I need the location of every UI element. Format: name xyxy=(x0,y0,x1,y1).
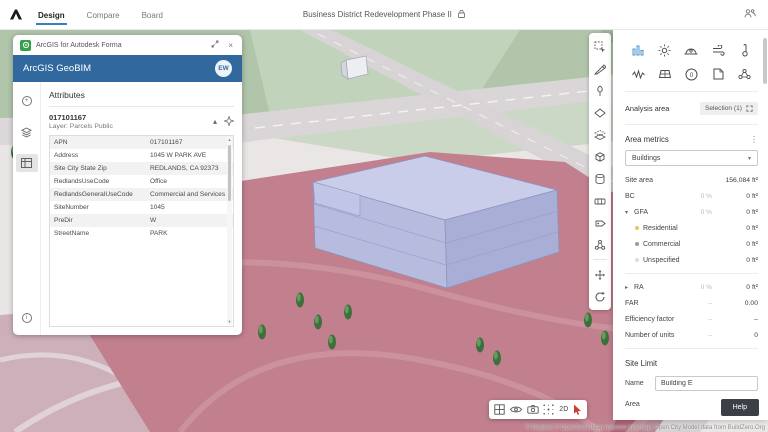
building-tool-icon[interactable] xyxy=(592,149,608,164)
chevron-down-icon: ▾ xyxy=(748,155,751,162)
attribute-table: APN017101167 Address1045 W PARK AVE Site… xyxy=(49,135,234,327)
site-limit-title: Site Limit xyxy=(625,354,758,372)
selection-button[interactable]: Selection (1) xyxy=(700,102,758,115)
embodied-carbon-icon[interactable]: 0 xyxy=(678,62,705,86)
metric-row-ra: ▸RA 0 % 0 ft² xyxy=(625,279,758,295)
focus-selection-icon xyxy=(746,105,753,112)
table-row[interactable]: StreetNamePARK xyxy=(50,227,233,240)
gfa-collapse-chevron[interactable]: ▾ xyxy=(625,209,634,216)
arcgis-logo-icon xyxy=(20,40,31,51)
export-icon[interactable] xyxy=(705,62,732,86)
select-tool-icon[interactable] xyxy=(592,39,608,54)
geobim-icon-rail: + i xyxy=(13,82,41,335)
connect-icon[interactable] xyxy=(731,62,758,86)
panel-scrollbar[interactable] xyxy=(763,38,767,84)
help-button[interactable]: Help xyxy=(721,399,759,416)
table-row[interactable]: Site City State ZipREDLANDS, CA 92373 xyxy=(50,162,233,175)
unspecified-color-dot xyxy=(635,258,639,262)
commercial-color-dot xyxy=(635,242,639,246)
noise-analysis-icon[interactable] xyxy=(625,62,652,86)
layout-window-icon[interactable] xyxy=(494,404,505,415)
site-name-input[interactable] xyxy=(655,376,758,391)
tab-board[interactable]: Board xyxy=(140,2,165,27)
user-avatar[interactable]: EW xyxy=(215,60,232,77)
draw-road-tool-icon[interactable] xyxy=(592,61,608,76)
geobim-panel: ArcGIS for Autodesk Forma × ArcGIS GeoBI… xyxy=(13,35,242,335)
annotation-tool-icon[interactable] xyxy=(592,215,608,230)
close-window-icon[interactable]: × xyxy=(226,41,235,50)
daylight-analysis-icon[interactable] xyxy=(678,38,705,62)
metric-row-unspecified: Unspecified 0 ft² xyxy=(625,252,758,268)
table-row[interactable]: SiteNumber1045 xyxy=(50,201,233,214)
metrics-scope-dropdown[interactable]: Buildings ▾ xyxy=(625,150,758,166)
sun-analysis-icon[interactable] xyxy=(652,38,679,62)
viewport-toolbar: 2D xyxy=(489,400,587,419)
table-row[interactable]: RedlandsUseCodeOffice xyxy=(50,175,233,188)
geobim-window-bar: ArcGIS for Autodesk Forma × xyxy=(13,35,242,55)
table-scrollbar[interactable]: ▲ ▼ xyxy=(227,137,232,325)
metric-row-far: FAR – 0.00 xyxy=(625,295,758,311)
attributes-section-title: Attributes xyxy=(49,90,234,107)
top-bar: Design Compare Board Business District R… xyxy=(0,0,768,30)
table-row[interactable]: APN017101167 xyxy=(50,136,233,149)
rotate-tool-icon[interactable] xyxy=(592,289,608,304)
zoom-fit-icon[interactable] xyxy=(543,404,554,415)
ra-expand-chevron[interactable]: ▸ xyxy=(625,284,634,291)
attribute-table-icon[interactable] xyxy=(16,154,38,172)
feature-header: 017101167 Layer: Parcels Public ▴ xyxy=(49,107,234,135)
extension-title: ArcGIS for Autodesk Forma xyxy=(36,42,204,49)
feature-layer-label: Layer: Parcels Public xyxy=(49,123,206,130)
site-area-label: Area xyxy=(625,401,722,408)
add-data-icon[interactable]: + xyxy=(16,92,38,110)
camera-icon[interactable] xyxy=(527,405,539,414)
site-name-label: Name xyxy=(625,380,647,387)
tab-compare[interactable]: Compare xyxy=(85,2,122,27)
autodesk-logo-icon[interactable] xyxy=(0,9,30,20)
visibility-icon[interactable] xyxy=(510,405,522,414)
geobim-app-title: ArcGIS GeoBIM xyxy=(23,63,215,74)
metric-row-units: Number of units – 0 xyxy=(625,327,758,343)
site-limit-tool-icon[interactable] xyxy=(592,105,608,120)
zoning-tool-icon[interactable] xyxy=(592,127,608,142)
solar-energy-icon[interactable] xyxy=(652,62,679,86)
geobim-header: ArcGIS GeoBIM EW xyxy=(13,55,242,82)
select-cursor-icon[interactable] xyxy=(573,404,582,415)
feature-id: 017101167 xyxy=(49,113,206,122)
residential-color-dot xyxy=(635,226,639,230)
collaboration-icon[interactable] xyxy=(744,6,756,24)
vegetation-tool-icon[interactable] xyxy=(592,83,608,98)
tab-design[interactable]: Design xyxy=(36,2,67,27)
geometry-tool-icon[interactable] xyxy=(592,171,608,186)
move-tool-icon[interactable] xyxy=(592,267,608,282)
area-metrics-menu-icon[interactable]: ⋮ xyxy=(750,135,758,144)
svg-text:0: 0 xyxy=(690,71,694,78)
table-row[interactable]: Address1045 W PARK AVE xyxy=(50,149,233,162)
area-metrics-icon[interactable] xyxy=(625,38,652,62)
expand-window-icon[interactable] xyxy=(209,40,221,50)
info-icon[interactable]: i xyxy=(16,309,38,327)
lock-icon xyxy=(458,10,465,20)
area-metrics-title: Area metrics xyxy=(625,135,669,144)
metric-row-efficiency: Efficiency factor – – xyxy=(625,311,758,327)
metric-row-bc: BC 0 % 0 ft² xyxy=(625,188,758,204)
map-attribution[interactable]: © Mapbox © OpenStreetMap Improve this ma… xyxy=(526,425,765,431)
collapse-chevron-icon[interactable]: ▴ xyxy=(213,117,217,126)
group-tool-icon[interactable] xyxy=(592,237,608,252)
analysis-area-label: Analysis area xyxy=(625,104,700,113)
2d-toggle-button[interactable]: 2D xyxy=(559,406,568,413)
wind-analysis-icon[interactable] xyxy=(705,38,732,62)
analysis-panel: 0 Analysis area Selection (1) Area metri… xyxy=(613,30,768,420)
metric-row-residential: Residential 0 ft² xyxy=(625,220,758,236)
zoom-to-feature-icon[interactable] xyxy=(224,116,234,128)
mode-tabs: Design Compare Board xyxy=(36,2,165,27)
modeling-toolbar xyxy=(589,33,611,310)
metric-row-commercial: Commercial 0 ft² xyxy=(625,236,758,252)
thermal-comfort-icon[interactable] xyxy=(731,38,758,62)
analysis-icon-grid: 0 xyxy=(625,38,758,86)
table-row[interactable]: RedlandsGeneralUseCodeCommercial and Ser… xyxy=(50,188,233,201)
metric-row-gfa: ▾GFA 0 % 0 ft² xyxy=(625,204,758,220)
table-row[interactable]: PreDirW xyxy=(50,214,233,227)
parking-tool-icon[interactable] xyxy=(592,193,608,208)
metric-row-site-area: Site area 156,084 ft² xyxy=(625,172,758,188)
layers-icon[interactable] xyxy=(16,123,38,141)
